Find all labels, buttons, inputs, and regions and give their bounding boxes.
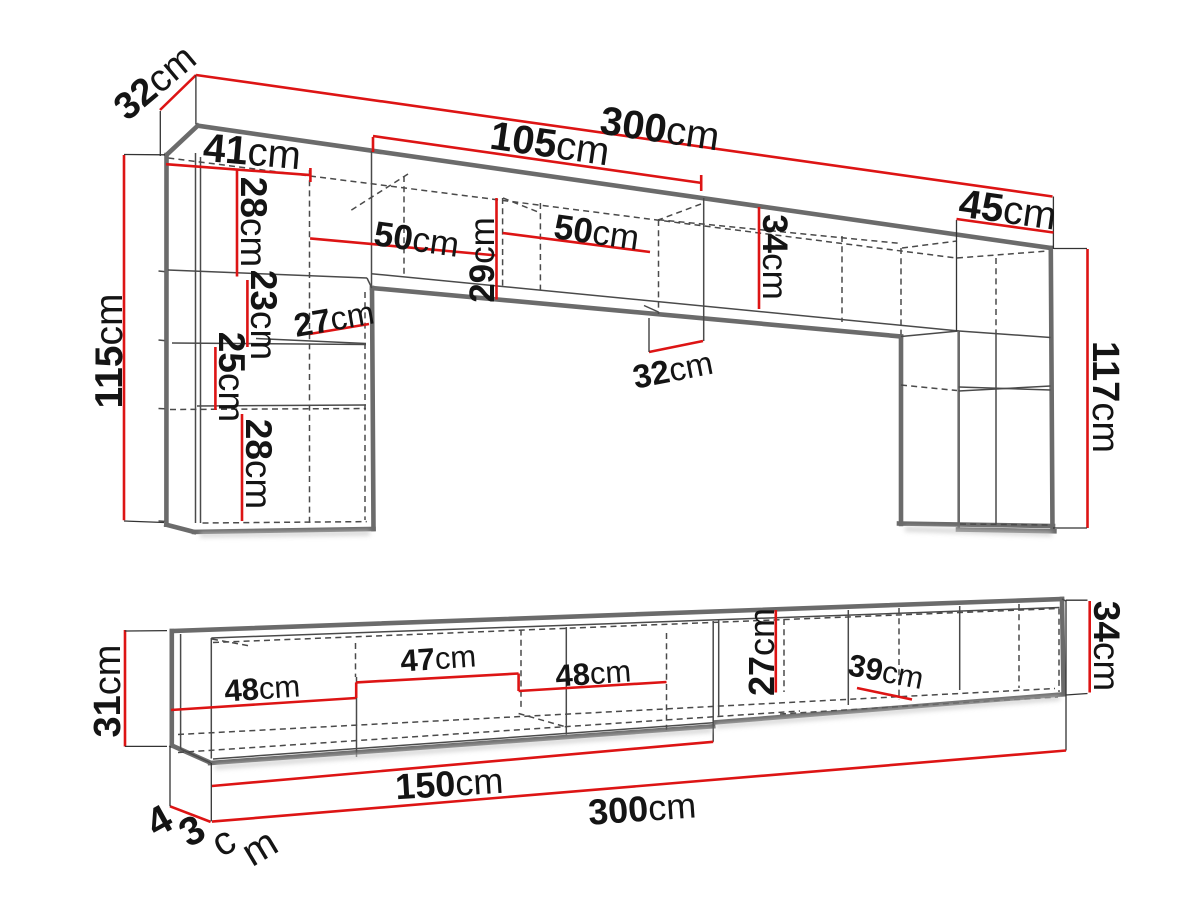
- svg-text:28cm: 28cm: [238, 419, 279, 509]
- svg-text:28cm: 28cm: [233, 177, 274, 267]
- svg-text:25cm: 25cm: [211, 332, 252, 422]
- svg-text:34cm: 34cm: [1086, 601, 1127, 691]
- svg-text:150cm: 150cm: [394, 760, 504, 808]
- svg-text:29cm: 29cm: [463, 217, 502, 303]
- svg-text:300cm: 300cm: [587, 784, 698, 832]
- svg-text:41cm: 41cm: [201, 126, 302, 178]
- svg-text:34cm: 34cm: [755, 214, 794, 300]
- svg-text:115cm: 115cm: [88, 294, 131, 409]
- svg-text:48cm: 48cm: [554, 653, 632, 693]
- svg-text:27cm: 27cm: [741, 608, 782, 696]
- svg-text:47cm: 47cm: [399, 638, 477, 678]
- svg-text:117cm: 117cm: [1084, 341, 1126, 453]
- svg-text:31cm: 31cm: [87, 645, 129, 738]
- svg-text:48cm: 48cm: [223, 668, 301, 708]
